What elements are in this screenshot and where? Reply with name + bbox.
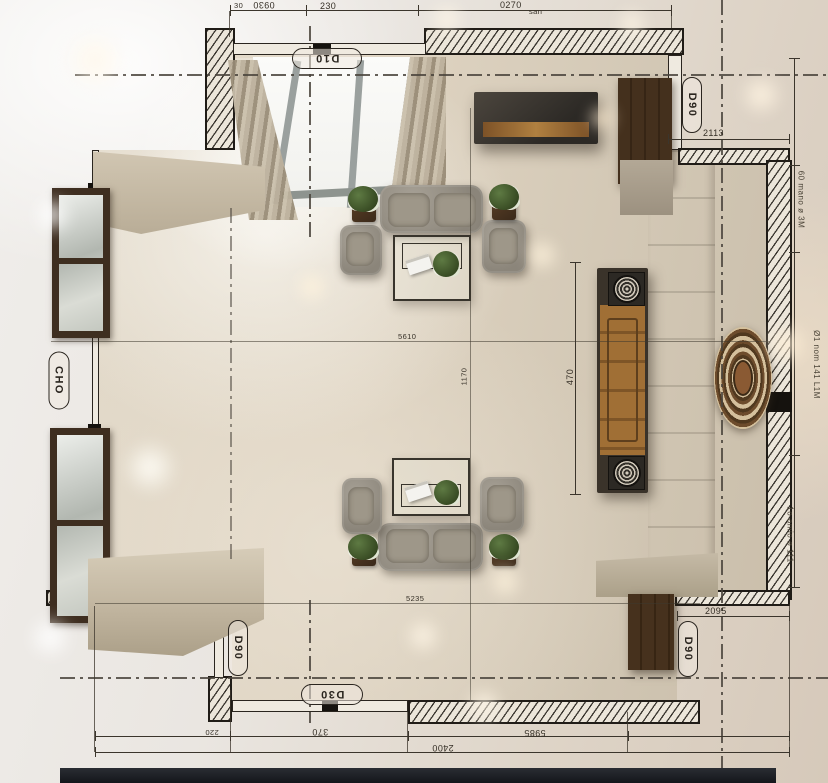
wall-left-mid (92, 336, 99, 430)
dim-tick (789, 58, 800, 59)
window-left-1-bar (59, 258, 103, 264)
dim-tick (677, 611, 678, 621)
dim-top-san: san (529, 7, 542, 16)
media-console-tray (607, 318, 638, 442)
dim-riser (671, 11, 672, 28)
dim-2400: 2400 (432, 743, 454, 753)
dim-tick (570, 494, 581, 495)
dim-line-bottom-1 (95, 736, 790, 737)
bottom-dark-strip (60, 768, 776, 783)
armchair-upper-left-cushion (346, 232, 374, 266)
wall-pier-top-left (205, 28, 235, 150)
dim-470: 470 (565, 369, 575, 385)
armchair-lower-right-cushion (487, 485, 516, 523)
dim-riser (789, 604, 790, 752)
dim-top-230: 230 (320, 1, 336, 11)
armchair-lower-left (342, 478, 382, 534)
bench-bottom-right-wood (628, 594, 674, 670)
dim-tick (628, 731, 629, 741)
dim-2113: 2113 (703, 128, 724, 138)
sofa-lower (378, 523, 483, 571)
dim-tick (95, 731, 96, 741)
dim-top-0930: 0930 (253, 0, 275, 10)
dim-5610: 5610 (398, 332, 416, 341)
planter-lower-right-foliage (489, 534, 519, 560)
wall-top (424, 28, 684, 55)
armchair-lower-right (480, 477, 524, 532)
dim-riser (230, 690, 231, 752)
floor-seam-horizontal-low (95, 603, 700, 604)
dim-1170: 1170 (459, 368, 468, 386)
sofa-upper (380, 185, 483, 233)
dim-tick (789, 252, 800, 253)
centerline-horizontal-bottom (60, 677, 828, 679)
coffee-table-lower (392, 458, 470, 516)
tag-d10: D10 (292, 48, 362, 69)
dim-riser (627, 712, 628, 752)
dim-tick (95, 747, 96, 757)
dim-line-2095 (677, 616, 790, 617)
centerline-horizontal-top (75, 74, 828, 76)
floor-seam-vertical (470, 108, 471, 702)
table-plant-lower (434, 480, 459, 505)
speaker-top-cone (613, 275, 641, 303)
tag-cho-left: CHO (49, 352, 70, 410)
dim-tick (668, 134, 669, 144)
dim-tick (306, 5, 307, 16)
dim-220: 220 (205, 728, 219, 737)
dim-tick (789, 455, 800, 456)
centerline-vertical-right (721, 0, 723, 783)
stone-ledge-top-right (620, 160, 673, 215)
dim-tick (570, 262, 581, 263)
dim-tick (418, 5, 419, 16)
wall-step-bottom-left (208, 676, 232, 722)
sofa-upper-cushion-1 (388, 193, 430, 227)
dim-top-30: 30 (234, 1, 243, 10)
armchair-upper-left (340, 225, 382, 275)
dim-tick (789, 134, 790, 144)
planter-upper-right-foliage (489, 184, 519, 210)
sofa-lower-cushion-1 (386, 529, 429, 563)
dim-line-top (230, 10, 672, 11)
tag-d90-top-right: D90 (682, 77, 702, 133)
speaker-bottom (608, 456, 645, 490)
speaker-bottom-cone (613, 459, 641, 487)
table-plant-upper (433, 251, 459, 277)
note-right-top: 60 mano ø 3M (796, 171, 805, 229)
window-left-1 (52, 188, 110, 338)
tag-d90-bottom-right: D90 (678, 621, 698, 677)
tv-cabinet-wood-inset (483, 122, 589, 137)
window-left-2-bar (57, 520, 103, 526)
dim-line-470 (575, 262, 576, 495)
dim-tick (789, 165, 800, 166)
armchair-lower-left-cushion (348, 487, 374, 525)
dim-riser (94, 606, 95, 752)
tag-d30-bottom: D30 (301, 684, 363, 705)
dim-tick (408, 731, 409, 741)
note-right-bottom: 1o amio ø 111 (786, 506, 795, 562)
dim-line-2113 (668, 139, 790, 140)
dim-5985: 5985 (524, 728, 546, 738)
light-glow (735, 75, 787, 115)
dim-riser (229, 11, 230, 37)
dim-top-0270: 0270 (500, 0, 522, 10)
round-rug-center (733, 360, 753, 396)
note-right-mid: Ø1 nom 141 L1M (812, 330, 821, 399)
dim-2095: 2095 (705, 606, 727, 616)
armchair-upper-right-cushion (489, 228, 518, 264)
speaker-top (608, 272, 645, 306)
dim-tick (230, 5, 231, 16)
armchair-upper-right (482, 220, 526, 273)
tag-d90-bottom-left: D90 (228, 620, 248, 676)
dim-370: 370 (312, 727, 328, 737)
dim-tick (789, 587, 800, 588)
centerline-bay (230, 208, 232, 560)
planter-upper-left-foliage (348, 186, 378, 212)
dim-riser (407, 712, 408, 752)
floor-seam-horizontal-mid (51, 341, 770, 342)
dim-5235: 5235 (406, 594, 424, 603)
floorplan-render: 30 0930 230 0270 san 2113 470 1170 5610 … (0, 0, 828, 783)
wall-bottom (408, 700, 700, 724)
coffee-table-upper (393, 235, 471, 301)
planter-lower-left-foliage (348, 534, 378, 560)
